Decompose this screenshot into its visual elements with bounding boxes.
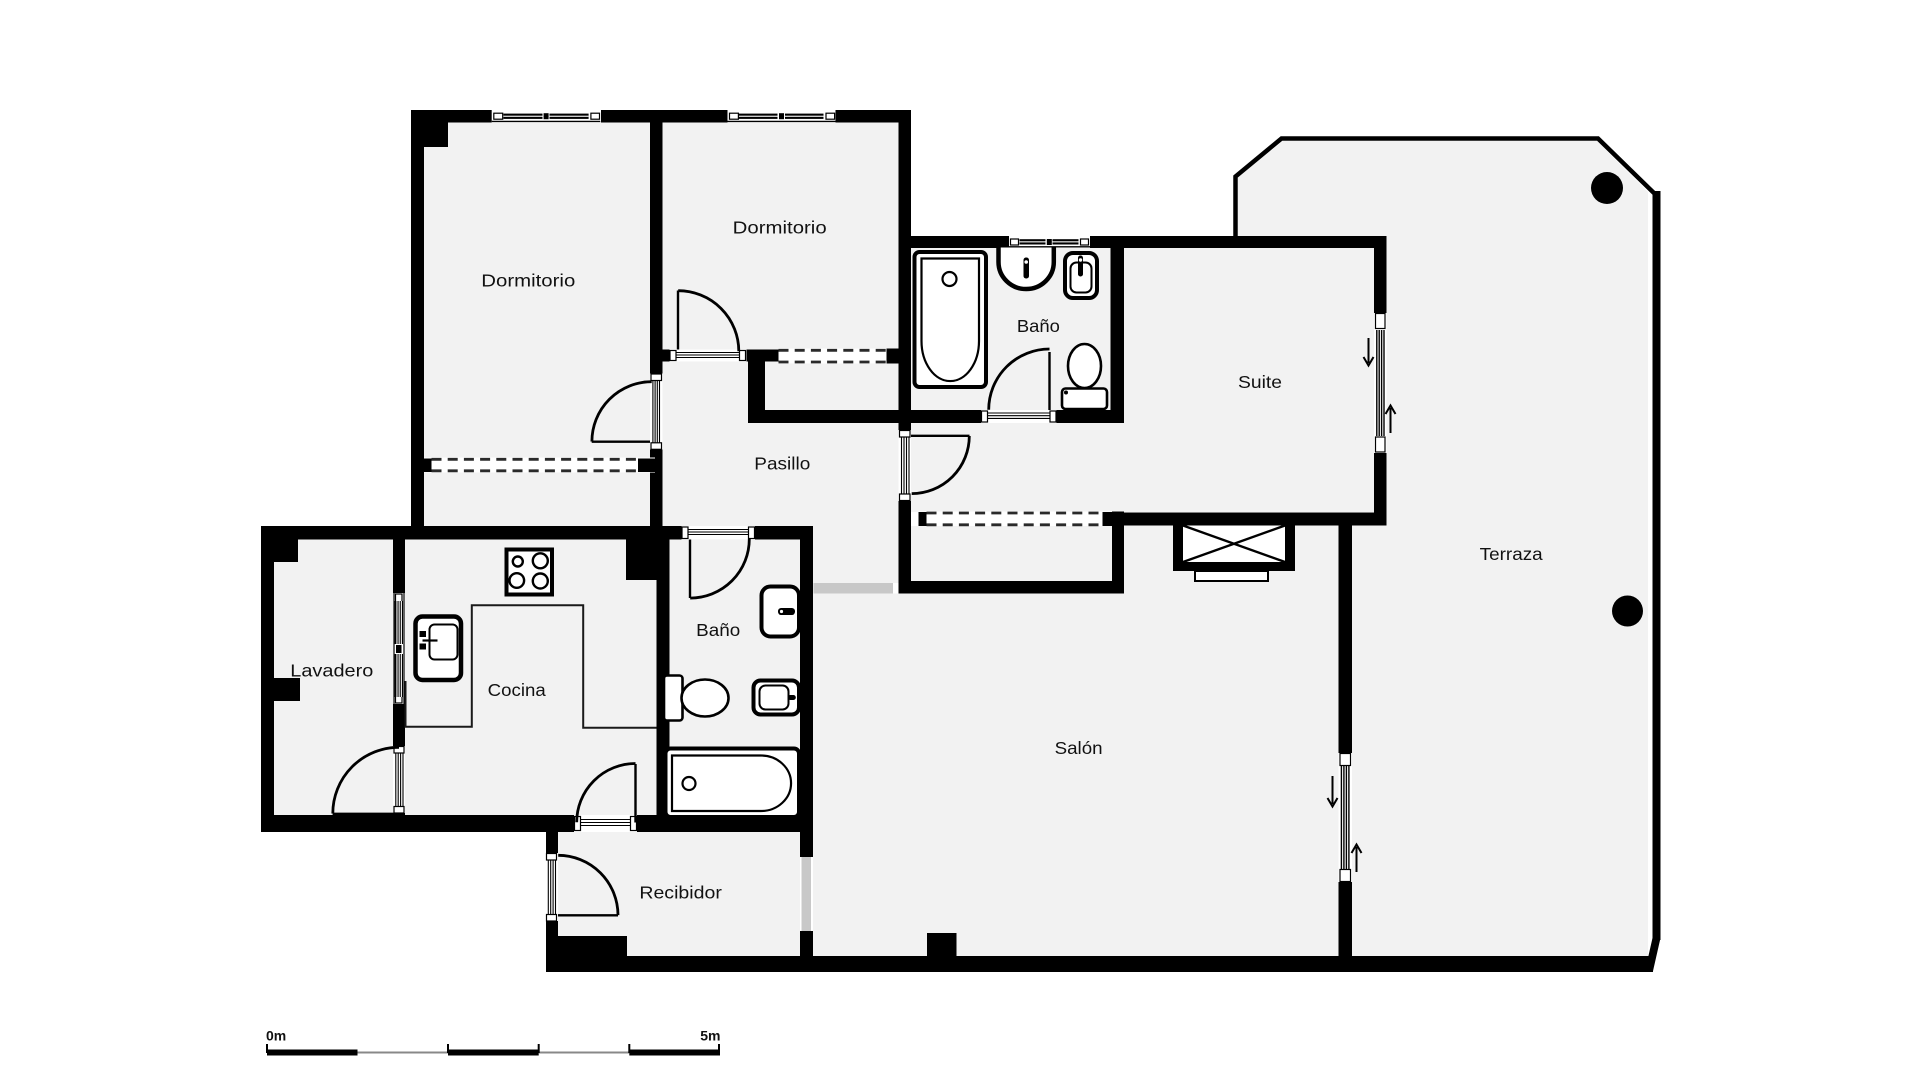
svg-text:Baño: Baño — [1017, 316, 1060, 336]
svg-text:Dormitorio: Dormitorio — [481, 270, 575, 290]
svg-text:Pasillo: Pasillo — [754, 454, 810, 474]
svg-text:Dormitorio: Dormitorio — [733, 218, 827, 238]
svg-text:Cocina: Cocina — [488, 680, 546, 700]
svg-text:0m: 0m — [266, 1028, 286, 1044]
svg-text:Baño: Baño — [696, 620, 740, 640]
svg-text:Recibidor: Recibidor — [639, 883, 722, 903]
svg-text:Terraza: Terraza — [1480, 544, 1543, 564]
svg-text:Salón: Salón — [1055, 738, 1103, 758]
svg-text:5m: 5m — [700, 1028, 720, 1044]
svg-text:Lavadero: Lavadero — [290, 661, 373, 681]
svg-text:Suite: Suite — [1238, 372, 1282, 392]
